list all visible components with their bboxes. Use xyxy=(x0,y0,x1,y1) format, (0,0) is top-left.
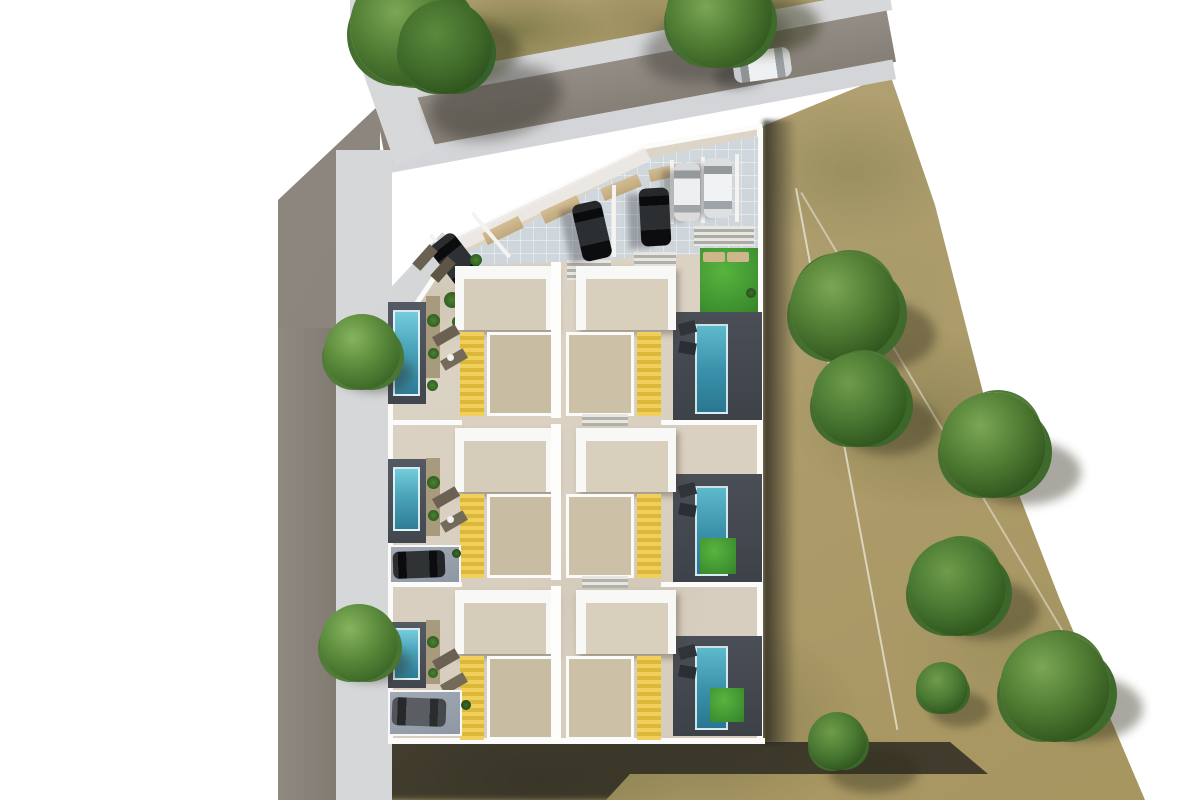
villa-row3-shrub xyxy=(428,668,438,678)
garden-lounger xyxy=(727,252,749,262)
garden-lawn-small xyxy=(710,688,744,722)
villa-row2-table xyxy=(447,516,454,523)
villa-row2-left-pergola xyxy=(460,494,484,578)
villa-row3-right-terrace xyxy=(566,656,634,740)
villa-row1-left-roof-terrace xyxy=(464,279,546,330)
field-tree xyxy=(1000,632,1110,742)
field-tree-small xyxy=(808,712,866,770)
villa-row1-left-terrace xyxy=(487,332,555,416)
villa-row1-left-pergola xyxy=(460,332,484,416)
villa-row2-right-roof-terrace xyxy=(586,441,668,492)
villa-row1-shrub xyxy=(427,314,440,327)
villa-row2-shrub xyxy=(428,510,439,521)
driveway-plant-pot xyxy=(452,549,461,558)
top-tree-dark xyxy=(398,0,492,94)
car-black-driveway xyxy=(393,550,446,579)
villa-row3-right-roof-terrace xyxy=(586,603,668,654)
villa-row2-left-roof-terrace xyxy=(464,441,546,492)
garden-stairs xyxy=(694,226,754,246)
villa-row1-right-pool xyxy=(695,324,728,414)
field-tree xyxy=(940,392,1046,498)
car-gray-driveway xyxy=(392,697,447,727)
parking-bay-divider xyxy=(735,154,739,222)
field-tree xyxy=(812,352,907,447)
villa-row3-left-pergola xyxy=(460,656,484,740)
villa-row2-left-pool xyxy=(393,467,420,531)
villa-row3-right-pergola xyxy=(637,656,661,740)
site-plan-render xyxy=(0,0,1200,800)
sidewalk-tree xyxy=(324,314,400,390)
field-tree xyxy=(790,252,900,362)
sidewalk-tree xyxy=(320,604,398,682)
villa-row3-left-roof-terrace xyxy=(464,603,546,654)
garden-lawn-small xyxy=(700,538,736,574)
villa-row3-party-wall xyxy=(551,586,561,742)
garden-lounger xyxy=(703,252,725,262)
villa-row2-left-terrace xyxy=(487,494,555,578)
road-left-sidewalk xyxy=(336,150,392,800)
field-tree xyxy=(908,538,1006,636)
villa-row1-party-wall xyxy=(551,262,561,418)
villa-row2-right-pergola xyxy=(637,494,661,578)
field-tree-small xyxy=(916,662,968,714)
villa-row2-right-terrace xyxy=(566,494,634,578)
building-shadow-right xyxy=(763,120,795,744)
villa-row2-shrub xyxy=(427,476,440,489)
villa-row1-shrub xyxy=(428,348,439,359)
villa-row3-stairs xyxy=(582,576,628,588)
row-divider-wall xyxy=(390,420,462,425)
villa-row1-right-terrace xyxy=(566,332,634,416)
villa-row1-shrub xyxy=(427,380,438,391)
car-white xyxy=(674,163,700,221)
road-left-asphalt xyxy=(278,328,336,800)
villa-row1-right-roof-terrace xyxy=(586,279,668,330)
villa-row1-right-pergola xyxy=(637,332,661,416)
car-black xyxy=(639,187,672,246)
villa-row2-stairs xyxy=(582,414,628,426)
chamfer-shrub xyxy=(470,254,482,266)
row-divider-wall xyxy=(661,420,762,425)
row-divider-wall xyxy=(661,582,762,587)
row-divider-wall xyxy=(390,582,462,587)
driveway-plant-pot xyxy=(461,700,471,710)
villa-row1-table xyxy=(447,354,454,361)
villa-row3-shrub xyxy=(427,636,439,648)
parking-bay-divider xyxy=(612,185,616,257)
garden-plant xyxy=(746,288,756,298)
villa-row2-party-wall xyxy=(551,424,561,580)
car-white xyxy=(704,158,732,218)
villa-row3-left-terrace xyxy=(487,656,555,740)
